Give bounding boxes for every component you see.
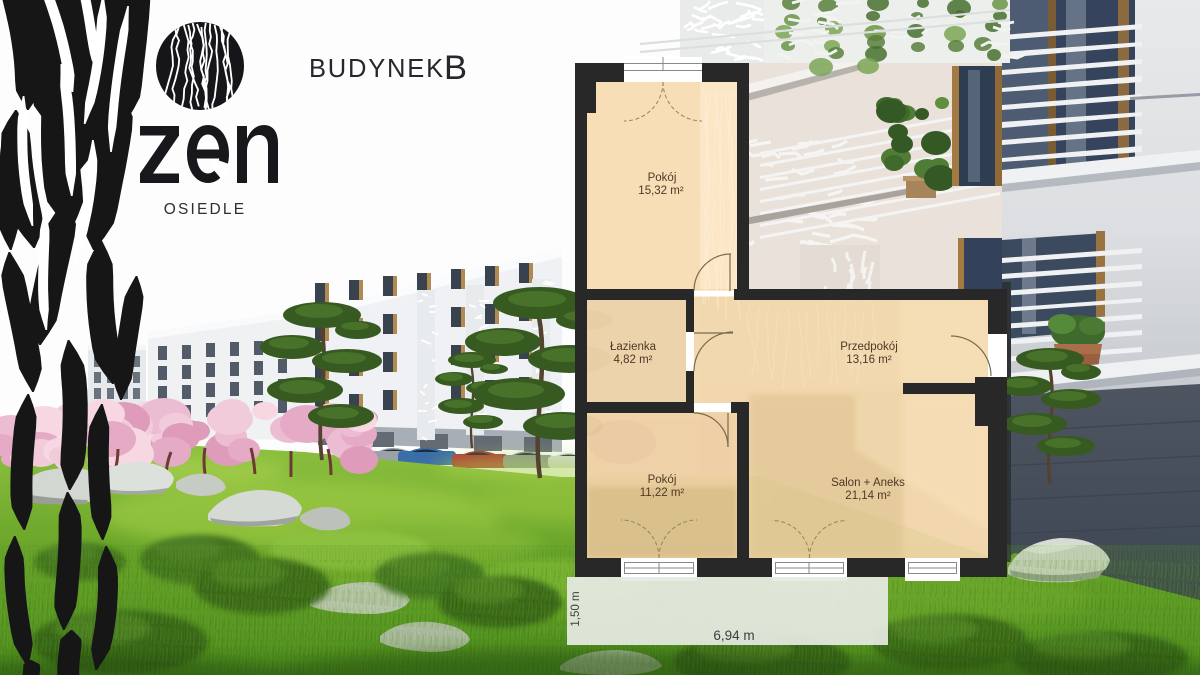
svg-text:6,94 m: 6,94 m <box>713 628 754 643</box>
svg-text:21,14 m²: 21,14 m² <box>845 490 891 502</box>
svg-text:B: B <box>444 49 467 87</box>
svg-text:13,16 m²: 13,16 m² <box>846 354 892 366</box>
svg-text:4,82 m²: 4,82 m² <box>614 354 653 366</box>
svg-text:Pokój: Pokój <box>648 474 677 486</box>
svg-text:Przedpokój: Przedpokój <box>840 341 898 353</box>
svg-text:15,32 m²: 15,32 m² <box>638 185 684 197</box>
svg-text:Łazienka: Łazienka <box>610 341 657 353</box>
svg-text:OSIEDLE: OSIEDLE <box>164 201 247 218</box>
svg-text:Salon + Aneks: Salon + Aneks <box>831 477 905 489</box>
svg-text:BUDYNEK: BUDYNEK <box>309 55 445 83</box>
svg-text:1,50 m: 1,50 m <box>570 591 582 626</box>
svg-text:11,22 m²: 11,22 m² <box>640 487 685 499</box>
svg-text:Pokój: Pokój <box>648 172 677 184</box>
